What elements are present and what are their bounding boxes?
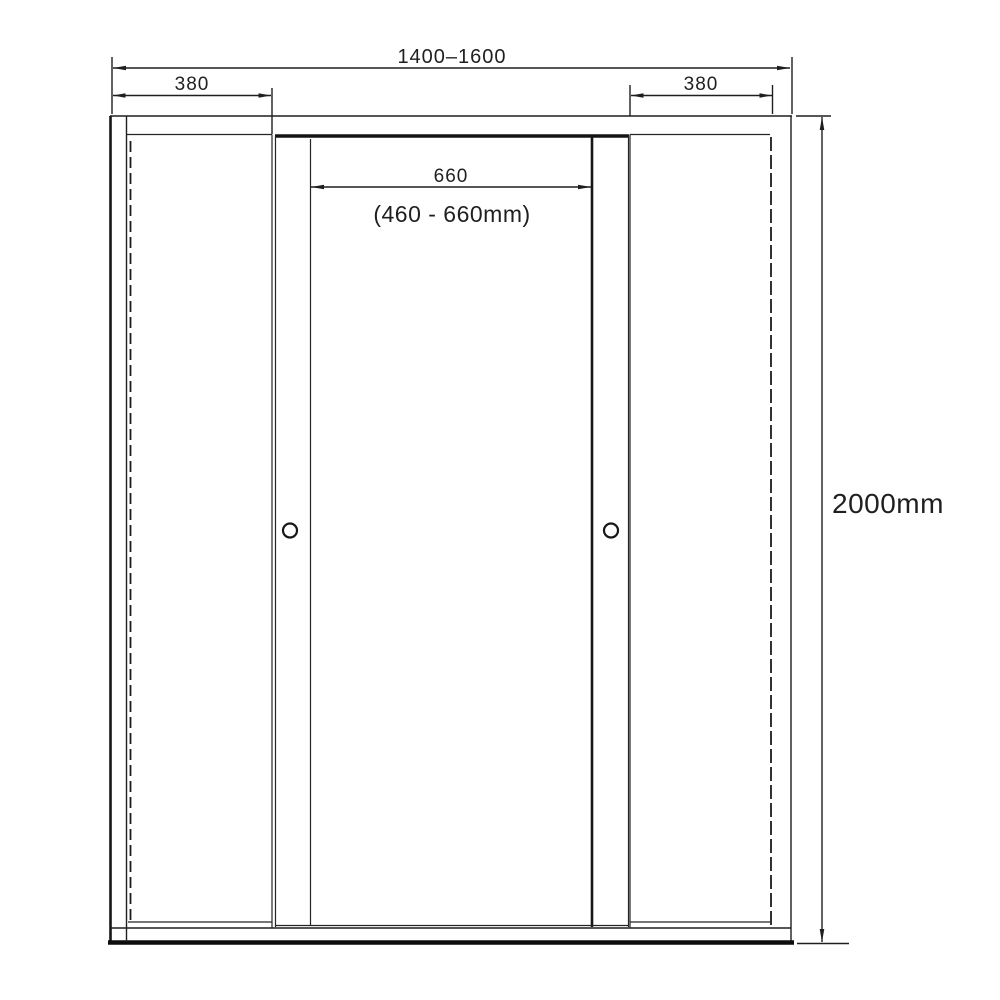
dim-right-panel-width: 380 (630, 74, 773, 116)
left-handle-knob (283, 524, 297, 538)
dim-door-opening-label: 660 (434, 166, 469, 187)
dim-left-panel-label: 380 (175, 74, 210, 95)
technical-drawing-canvas: 1400–1600 380 380 660 (460 - 660mm) (0, 0, 1000, 1000)
sliding-door (275, 136, 629, 927)
dim-total-width-arrow-right (777, 66, 790, 71)
dim-left-panel-width: 380 (113, 74, 272, 134)
dim-door-opening-arrow-left (311, 185, 324, 190)
dim-left-panel-arrow-right (259, 93, 272, 97)
sliding-door-diagram: 1400–1600 380 380 660 (460 - 660mm) (0, 0, 1000, 1000)
dim-left-panel-arrow-left (113, 93, 126, 97)
dim-right-panel-arrow-left (631, 93, 644, 97)
left-fixed-panel (127, 135, 272, 929)
dim-height-arrow-top (820, 117, 825, 130)
dim-height-label: 2000mm (832, 488, 944, 519)
dim-total-width-label: 1400–1600 (397, 46, 506, 68)
dim-door-opening-arrow-right (578, 185, 591, 190)
dim-height: 2000mm (796, 116, 944, 944)
dim-door-opening: 660 (460 - 660mm) (311, 166, 591, 227)
right-fixed-panel (630, 135, 771, 929)
dim-door-opening-range-label: (460 - 660mm) (373, 201, 530, 227)
right-handle-knob (604, 524, 618, 538)
outer-frame (108, 116, 794, 943)
dim-height-arrow-bottom (820, 929, 825, 942)
dim-total-width-arrow-left (113, 66, 126, 71)
dim-right-panel-arrow-right (760, 93, 773, 97)
dim-right-panel-label: 380 (684, 74, 719, 95)
